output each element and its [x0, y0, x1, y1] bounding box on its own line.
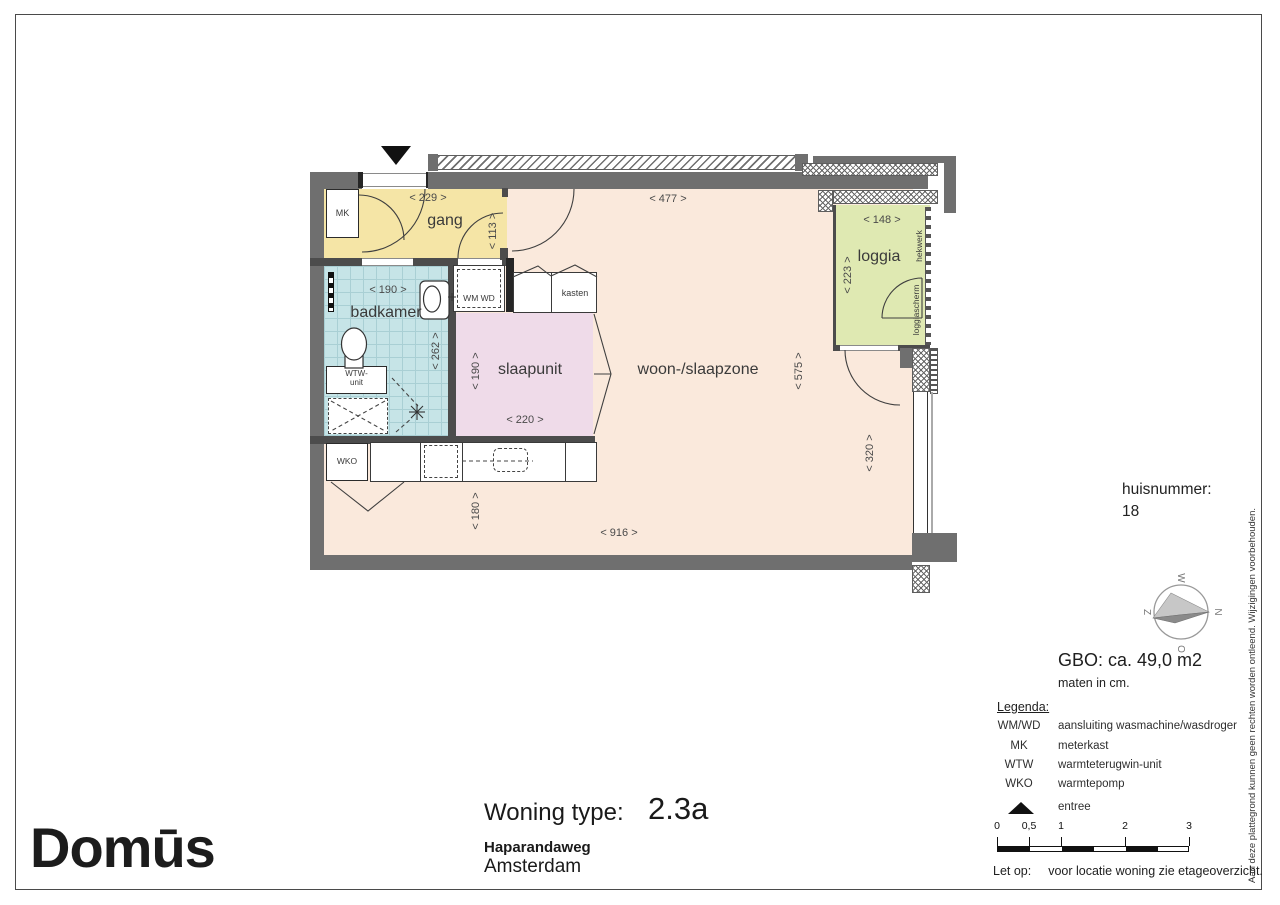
legend-desc-entree: entree	[1058, 801, 1091, 813]
loggia-wall-left	[833, 205, 836, 346]
legend-desc-mk: meterkast	[1058, 740, 1109, 752]
scalebar	[997, 846, 1189, 852]
loggia-door-opening	[840, 345, 898, 351]
gbo-label: GBO: ca. 49,0 m2	[1058, 650, 1202, 671]
woning-type-label: Woning type:	[484, 799, 624, 827]
scalebar-3: 3	[1186, 820, 1192, 832]
floorplan-sheet: gang badkamer slaapunit woon-/slaapzone …	[0, 0, 1280, 905]
dim-190-badkamer: < 190 >	[348, 284, 428, 296]
legend-desc-wko: warmtepomp	[1058, 778, 1124, 790]
dim-916: < 916 >	[579, 527, 659, 539]
legend-title: Legenda:	[997, 700, 1049, 714]
disclaimer-vertical-text: Aan deze plattegrond kunnen geen rechten…	[1247, 477, 1261, 883]
loggia-outer-band-top	[813, 156, 956, 163]
hob-outline	[493, 448, 528, 472]
dim-113: < 113 >	[487, 201, 501, 261]
legend-key-wmwd: WM/WD	[991, 720, 1047, 732]
dim-262: < 262 >	[430, 321, 444, 381]
window-sill-line	[931, 392, 933, 533]
label-woonzone: woon-/slaapzone	[628, 361, 768, 379]
scalebar-0: 0	[994, 820, 1000, 832]
label-wko: WKO	[327, 456, 367, 466]
dim-190-slaapunit: < 190 >	[470, 341, 484, 401]
label-kasten: kasten	[540, 288, 610, 298]
dishwasher-outline	[424, 445, 458, 478]
pier-hatch-upper-right	[912, 348, 930, 392]
loggia-hatch-pier	[818, 190, 833, 212]
label-wtw-line1: WTW-	[345, 369, 368, 378]
huisnummer-label: huisnummer:	[1122, 481, 1212, 499]
loggia-outer-band-right	[944, 156, 956, 213]
dim-148: < 148 >	[842, 214, 922, 226]
legend-key-mk: MK	[991, 740, 1047, 752]
label-gang: gang	[395, 212, 495, 230]
street-label: Haparandaweg	[484, 839, 591, 856]
scalebar-2: 2	[1122, 820, 1128, 832]
balustrade-right	[930, 348, 938, 394]
canopy-cap-left	[428, 154, 438, 171]
canopy-hatch	[437, 155, 796, 170]
huisnummer-value: 18	[1122, 503, 1139, 521]
counter-divider-3	[565, 442, 566, 482]
label-slaapunit: slaapunit	[470, 361, 590, 379]
woning-type-value: 2.3a	[648, 791, 708, 827]
label-wmwd: WM WD	[454, 293, 504, 303]
scalebar-tick	[997, 837, 998, 846]
scalebar-tick	[1189, 837, 1190, 846]
dim-575: < 575 >	[793, 341, 807, 401]
loggia-hatch-upper	[802, 163, 938, 176]
label-wtw-line2: unit	[350, 378, 363, 387]
logo: Domūs	[30, 815, 215, 880]
note-text: voor locatie woning zie etageoverzicht.	[1048, 864, 1263, 878]
scalebar-tick	[1061, 837, 1062, 846]
dim-220: < 220 >	[485, 414, 565, 426]
label-wtw: WTW-unit	[327, 369, 386, 387]
legend-desc-wmwd: aansluiting wasmachine/wasdroger	[1058, 720, 1237, 732]
dim-180: < 180 >	[470, 481, 484, 541]
kitchen-counter	[370, 442, 597, 482]
loggia-hekwerk-fence	[925, 207, 931, 345]
city-label: Amsterdam	[484, 856, 581, 878]
note-label: Let op:	[993, 864, 1031, 878]
scalebar-tick	[1029, 837, 1030, 846]
legend-key-wtw: WTW	[991, 759, 1047, 771]
loggia-hatch-lower	[833, 190, 938, 204]
badkamer-door-opening	[362, 258, 413, 266]
dim-229: < 229 >	[388, 192, 468, 204]
label-badkamer: badkamer	[326, 304, 446, 322]
counter-divider-2	[462, 442, 463, 482]
entree-icon	[1008, 802, 1034, 814]
pier-hatch-lower-right	[912, 565, 930, 593]
note-line: Let op: voor locatie woning zie etageove…	[993, 864, 1263, 878]
dim-477: < 477 >	[628, 193, 708, 205]
scalebar-1: 1	[1058, 820, 1064, 832]
pier-gray-small	[900, 348, 912, 368]
entrance-arrow-icon	[381, 146, 411, 165]
entrance-opening	[362, 173, 428, 187]
label-loggiascherm: loggiascherm	[911, 275, 921, 345]
wall-bottom	[310, 555, 912, 570]
scalebar-tick	[1125, 837, 1126, 846]
legend-key-wko: WKO	[991, 778, 1047, 790]
dim-223: < 223 >	[842, 245, 856, 305]
entrance-jamb-left	[358, 172, 363, 188]
window-right	[913, 392, 928, 533]
corner-gray-bottom-right	[912, 533, 957, 562]
wall-left	[310, 172, 324, 570]
wall-top-left	[310, 172, 362, 189]
maten-label: maten in cm.	[1058, 676, 1130, 690]
shower-tray	[328, 398, 388, 434]
legend-desc-wtw: warmteterugwin-unit	[1058, 759, 1162, 771]
label-mk: MK	[327, 208, 358, 218]
wall-stub-gang-top	[502, 188, 508, 197]
scalebar-05: 0,5	[1022, 820, 1037, 832]
dim-320: < 320 >	[864, 423, 878, 483]
counter-divider-1	[420, 442, 421, 482]
